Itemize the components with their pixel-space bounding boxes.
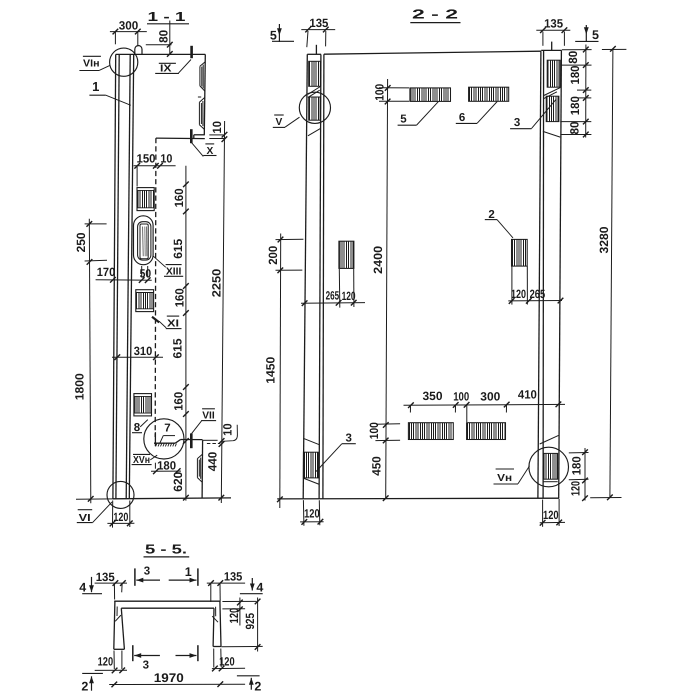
svg-text:XIII: XIII xyxy=(166,266,182,277)
svg-text:5: 5 xyxy=(592,28,599,42)
svg-text:80: 80 xyxy=(567,121,581,134)
svg-text:1970: 1970 xyxy=(154,671,184,685)
svg-text:2: 2 xyxy=(254,679,261,693)
svg-text:1: 1 xyxy=(92,79,99,94)
svg-text:440: 440 xyxy=(205,451,219,471)
svg-text:100: 100 xyxy=(453,389,469,403)
svg-text:100: 100 xyxy=(367,422,381,439)
svg-text:615: 615 xyxy=(171,338,185,358)
svg-text:615: 615 xyxy=(171,238,185,258)
svg-text:120: 120 xyxy=(543,508,559,522)
svg-text:VIн: VIн xyxy=(83,59,100,70)
svg-text:160: 160 xyxy=(172,288,186,307)
svg-text:10: 10 xyxy=(221,423,235,436)
svg-text:100: 100 xyxy=(373,84,387,101)
svg-text:135: 135 xyxy=(96,570,115,584)
svg-text:50: 50 xyxy=(140,266,152,280)
svg-text:80: 80 xyxy=(157,30,171,43)
svg-text:3: 3 xyxy=(514,117,520,129)
svg-text:5 - 5.: 5 - 5. xyxy=(145,541,187,556)
svg-text:80: 80 xyxy=(566,50,580,63)
svg-text:1: 1 xyxy=(185,565,192,579)
svg-text:200: 200 xyxy=(266,245,280,264)
svg-text:135: 135 xyxy=(224,569,243,583)
svg-text:410: 410 xyxy=(518,387,537,401)
svg-text:925: 925 xyxy=(243,613,257,630)
svg-text:180: 180 xyxy=(157,458,176,472)
svg-text:3280: 3280 xyxy=(597,226,611,253)
svg-text:5: 5 xyxy=(400,113,407,125)
svg-text:6: 6 xyxy=(459,112,465,124)
svg-text:1800: 1800 xyxy=(73,373,87,400)
svg-text:120: 120 xyxy=(227,608,241,624)
svg-text:120: 120 xyxy=(219,655,235,669)
svg-text:300: 300 xyxy=(480,389,500,403)
svg-text:V: V xyxy=(276,117,283,128)
svg-text:2250: 2250 xyxy=(209,268,223,297)
svg-text:120: 120 xyxy=(342,289,356,303)
svg-text:120: 120 xyxy=(569,481,583,496)
svg-text:5: 5 xyxy=(270,29,277,43)
svg-text:2400: 2400 xyxy=(371,246,385,274)
svg-text:1450: 1450 xyxy=(264,356,278,383)
svg-text:Vн: Vн xyxy=(497,473,512,484)
svg-text:300: 300 xyxy=(119,19,139,33)
svg-text:450: 450 xyxy=(370,456,384,476)
svg-text:160: 160 xyxy=(172,391,186,410)
svg-text:310: 310 xyxy=(134,344,153,358)
svg-text:2 - 2: 2 - 2 xyxy=(412,6,458,21)
svg-text:265: 265 xyxy=(530,287,546,301)
svg-text:2: 2 xyxy=(81,679,88,693)
svg-text:4: 4 xyxy=(256,581,263,595)
svg-text:120: 120 xyxy=(113,510,128,524)
svg-text:350: 350 xyxy=(423,389,443,403)
svg-text:150: 150 xyxy=(137,152,156,166)
svg-text:10: 10 xyxy=(160,152,172,166)
svg-text:3: 3 xyxy=(143,659,149,671)
svg-text:180: 180 xyxy=(568,65,582,84)
svg-text:180: 180 xyxy=(568,96,582,115)
svg-text:265: 265 xyxy=(326,289,340,303)
svg-text:135: 135 xyxy=(544,17,563,31)
svg-text:250: 250 xyxy=(74,232,88,252)
svg-text:120: 120 xyxy=(304,506,320,520)
svg-text:3: 3 xyxy=(144,565,150,577)
svg-text:1 - 1: 1 - 1 xyxy=(148,9,186,24)
svg-text:135: 135 xyxy=(309,16,328,30)
svg-text:8: 8 xyxy=(134,422,141,434)
svg-text:620: 620 xyxy=(171,471,185,491)
svg-text:7: 7 xyxy=(164,423,170,435)
svg-text:180: 180 xyxy=(570,456,584,475)
svg-text:3: 3 xyxy=(345,433,351,445)
svg-text:160: 160 xyxy=(172,188,186,207)
svg-text:4: 4 xyxy=(79,581,86,595)
svg-text:170: 170 xyxy=(97,265,116,279)
svg-text:120: 120 xyxy=(98,655,114,669)
svg-text:10: 10 xyxy=(210,121,224,134)
svg-text:120: 120 xyxy=(511,287,526,301)
